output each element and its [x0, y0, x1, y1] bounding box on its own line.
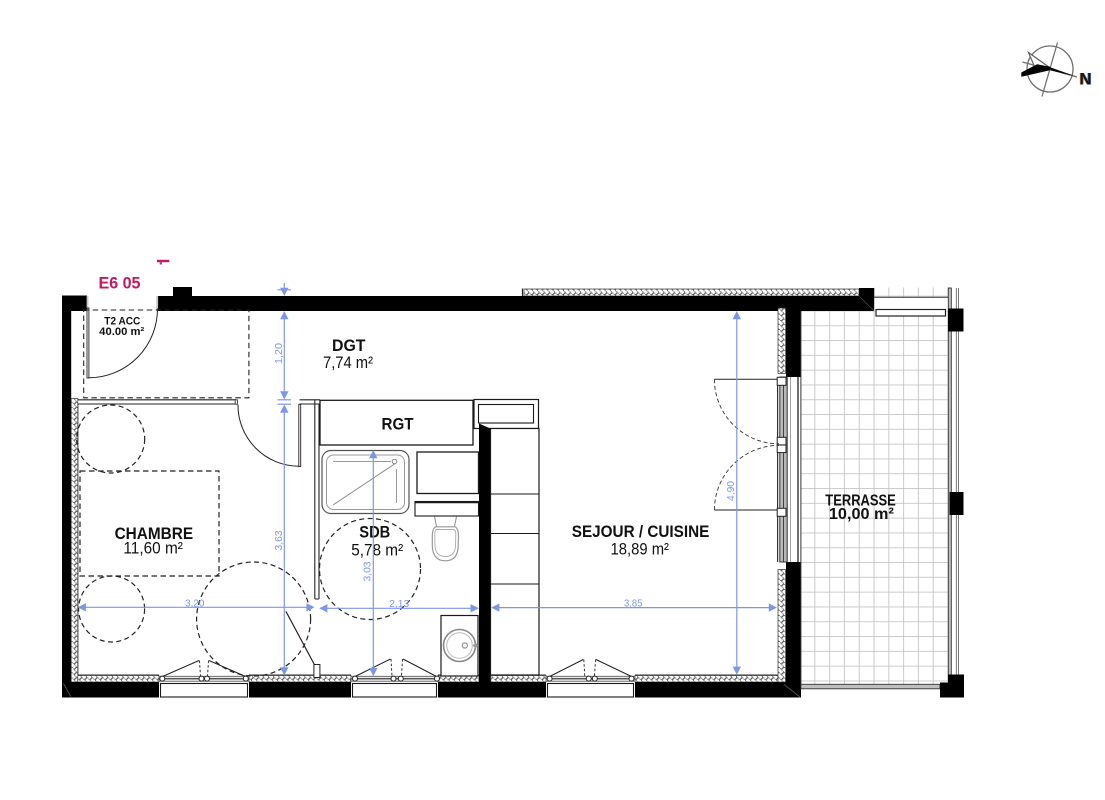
- svg-text:5,78 m²: 5,78 m²: [351, 540, 403, 559]
- svg-text:3,85: 3,85: [624, 598, 643, 610]
- svg-text:3,20: 3,20: [185, 597, 205, 609]
- svg-text:E6 05: E6 05: [99, 274, 141, 293]
- svg-text:SDB: SDB: [359, 522, 390, 541]
- svg-text:2,13: 2,13: [389, 598, 409, 610]
- svg-text:SEJOUR / CUISINE: SEJOUR / CUISINE: [572, 522, 710, 541]
- svg-text:3,63: 3,63: [273, 530, 285, 550]
- svg-text:11,60 m²: 11,60 m²: [123, 539, 183, 558]
- svg-text:N: N: [1080, 71, 1092, 89]
- svg-text:RGT: RGT: [382, 416, 414, 434]
- svg-text:18,89 m²: 18,89 m²: [611, 540, 670, 559]
- svg-text:7,74 m²: 7,74 m²: [323, 353, 373, 372]
- svg-text:1,20: 1,20: [273, 343, 285, 364]
- svg-text:4,90: 4,90: [725, 481, 737, 501]
- svg-text:3,03: 3,03: [362, 561, 374, 581]
- svg-text:10,00 m²: 10,00 m²: [829, 506, 894, 523]
- svg-text:40.00 m²: 40.00 m²: [99, 326, 144, 338]
